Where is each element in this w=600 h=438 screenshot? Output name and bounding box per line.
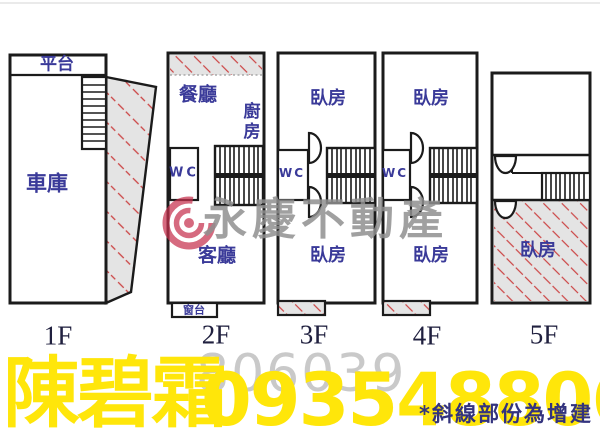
2f-dining-label: 餐廳 [179, 86, 217, 105]
2f-wc-label: WC [169, 167, 199, 180]
1f-addition-hatch [106, 77, 156, 303]
1f-floor-label: 1F [44, 323, 73, 350]
5f-stairs [542, 173, 590, 200]
5f-stair-treads [546, 173, 584, 200]
5f-bedroom-label: 臥房 [520, 242, 556, 260]
agent-phone-text: 0935488061 [201, 364, 600, 437]
3f-addition-hatch [278, 301, 325, 315]
hatch-note-text: *斜線部份為增建 [419, 404, 593, 425]
3f-bedroom-bottom-label: 臥房 [310, 247, 346, 265]
floorplan-image: 平台 車庫 1F 餐廳 廚房 WC 客廳 窗台 2F 臥房 WC 臥房 3F 臥… [0, 0, 600, 438]
agent-name-text: 陳碧霜 [3, 356, 225, 433]
4f-wc-label: WC [382, 167, 408, 179]
4f-floor-label: 4F [413, 323, 442, 350]
1f-platform-label: 平台 [40, 57, 74, 74]
floor-5f-geometry [492, 73, 590, 303]
5f-floor-label: 5F [530, 322, 559, 349]
3f-bedroom-top-label: 臥房 [310, 90, 346, 108]
2f-window-sill-label: 窗台 [183, 305, 205, 316]
brand-watermark-text: 永慶不動產 [203, 198, 448, 242]
1f-garage-label: 車庫 [26, 174, 68, 195]
logo-center-dot [184, 218, 194, 228]
2f-addition-hatch [170, 55, 262, 75]
4f-bedroom-bottom-label: 臥房 [413, 247, 449, 265]
4f-addition-hatch [383, 301, 430, 315]
2f-kitchen-label: 廚房 [241, 102, 258, 142]
4f-bedroom-top-label: 臥房 [413, 90, 449, 108]
3f-wc-label: WC [279, 167, 305, 179]
